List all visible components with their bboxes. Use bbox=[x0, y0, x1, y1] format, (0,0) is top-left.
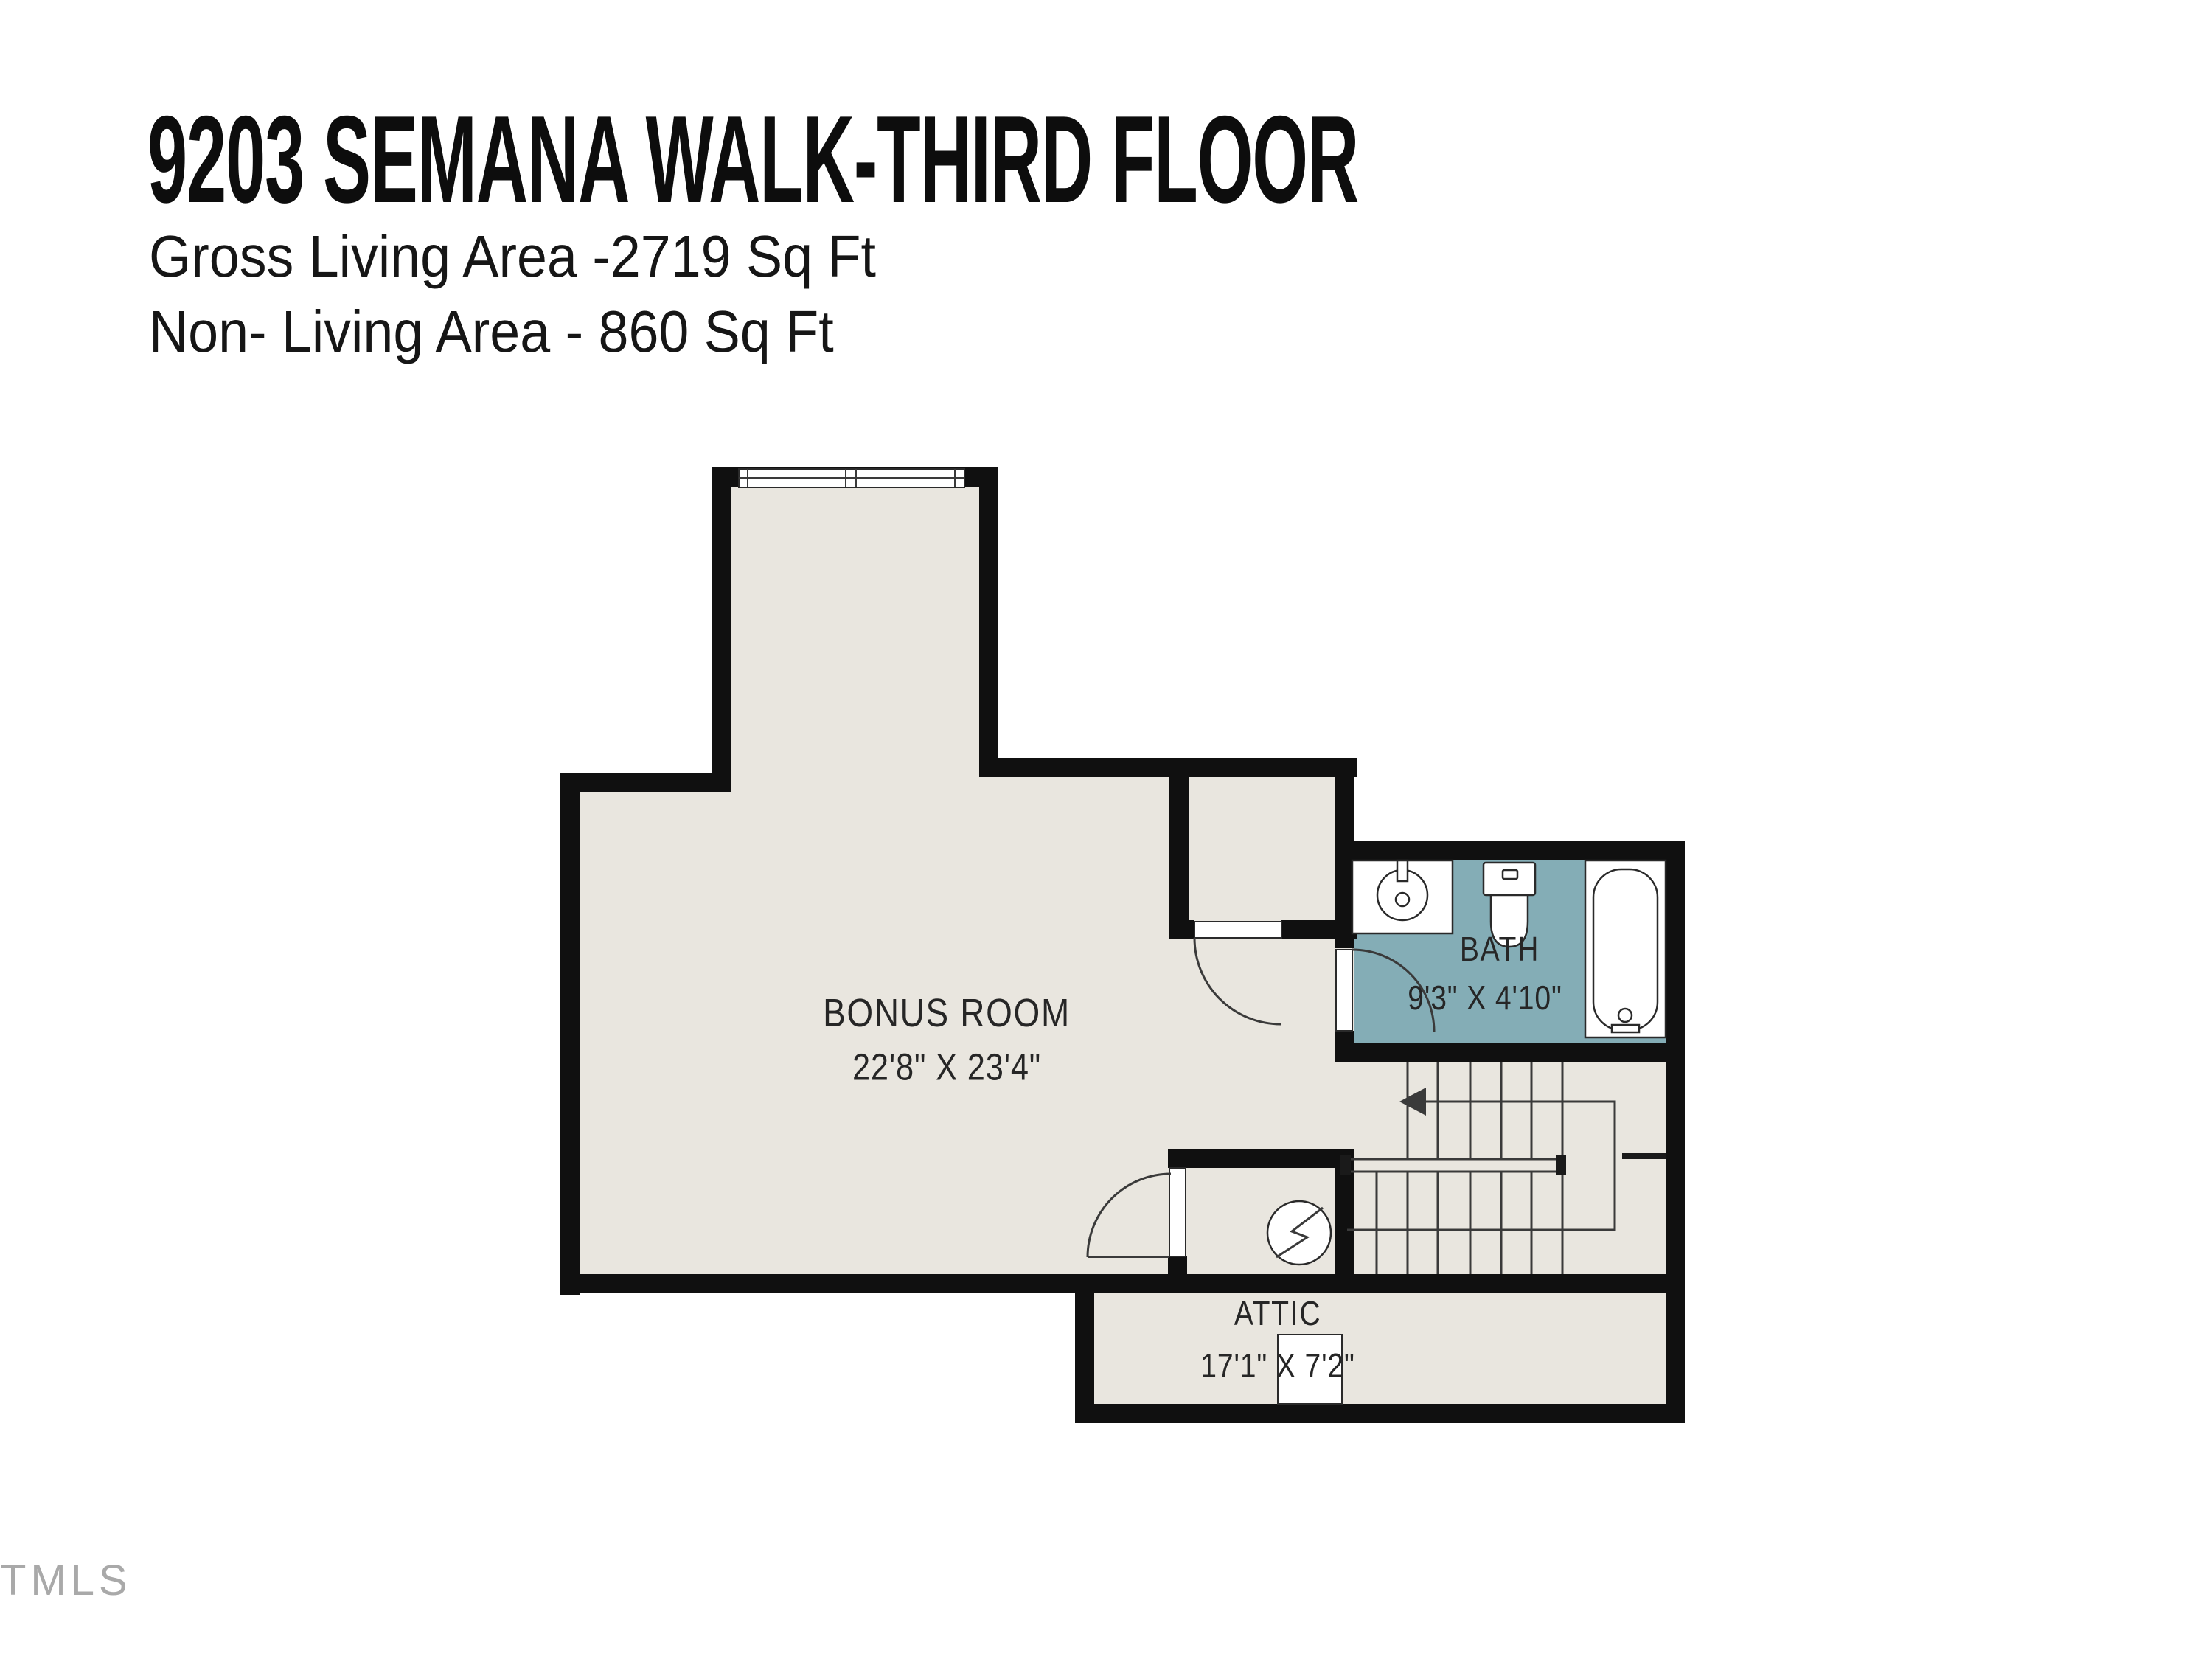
bonus-room-dimensions: 22'8" X 23'4" bbox=[852, 1046, 1041, 1089]
tub-basin bbox=[1593, 869, 1658, 1030]
wall-bath-bottom bbox=[1335, 1043, 1666, 1062]
handrail-cap-right bbox=[1556, 1155, 1566, 1175]
wall-bath-left-upper bbox=[1335, 758, 1354, 948]
sink-drain bbox=[1396, 893, 1409, 906]
electrical-panel-icon bbox=[1267, 1201, 1331, 1265]
floor-top-wing bbox=[731, 478, 979, 796]
sink bbox=[1352, 860, 1453, 933]
wall-entry-door-jamb bbox=[1168, 1256, 1187, 1293]
floorplan-drawing bbox=[0, 0, 2212, 1659]
wall-wing-left bbox=[712, 467, 731, 792]
wall-closet-left bbox=[1169, 777, 1189, 935]
window-double bbox=[739, 469, 964, 487]
entry-door-leaf bbox=[1169, 1168, 1186, 1256]
bath-dimensions: 9'3" X 4'10" bbox=[1408, 978, 1562, 1018]
bath-door-leaf bbox=[1336, 950, 1352, 1031]
wall-outer-right bbox=[1666, 841, 1685, 1423]
wall-closet-bottom-a bbox=[1169, 920, 1194, 939]
handrail-cap-left bbox=[1340, 1155, 1351, 1175]
wall-attic-entry-top bbox=[1168, 1149, 1354, 1168]
tub-drain bbox=[1618, 1009, 1632, 1022]
floorplan-page: 9203 SEMANA WALK-THIRD FLOOR Gross Livin… bbox=[0, 0, 2212, 1659]
wall-top-right bbox=[979, 758, 1357, 777]
wall-bottom-band bbox=[560, 1274, 1685, 1293]
wall-outer-left bbox=[560, 773, 580, 1295]
wall-wing-right bbox=[979, 467, 998, 777]
bonus-room-label: BONUS ROOM bbox=[823, 990, 1071, 1036]
sink-faucet bbox=[1397, 860, 1408, 881]
floor-stair-hall bbox=[1354, 1062, 1666, 1274]
attic-dimensions: 17'1" X 7'2" bbox=[1200, 1346, 1354, 1385]
tmls-watermark: TMLS bbox=[0, 1556, 132, 1605]
wall-attic-left bbox=[1075, 1274, 1094, 1423]
stair-rail-stub bbox=[1622, 1153, 1666, 1159]
bathtub bbox=[1585, 860, 1666, 1037]
closet-door-leaf bbox=[1194, 922, 1281, 938]
tub-faucet bbox=[1612, 1025, 1639, 1032]
attic-label: ATTIC bbox=[1234, 1293, 1322, 1333]
wall-attic-bottom bbox=[1075, 1404, 1685, 1423]
wall-top-left bbox=[560, 773, 731, 792]
toilet-button bbox=[1503, 870, 1517, 879]
electrical-circle bbox=[1267, 1201, 1331, 1265]
wall-bath-top bbox=[1354, 841, 1685, 860]
floor-attic bbox=[1094, 1293, 1666, 1404]
bath-label: BATH bbox=[1460, 929, 1540, 969]
